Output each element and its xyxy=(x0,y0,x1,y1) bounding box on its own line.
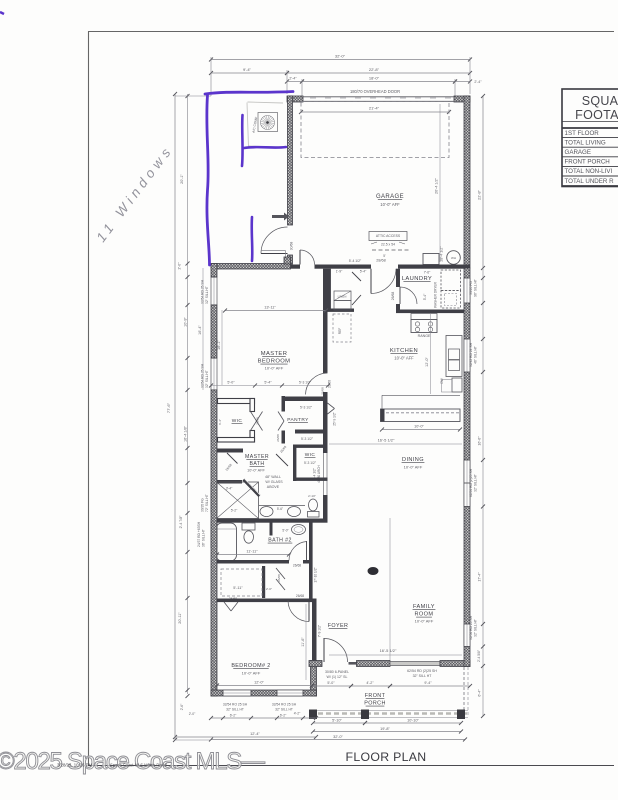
svg-text:6'-2": 6'-2" xyxy=(230,714,237,718)
svg-text:5'-2": 5'-2" xyxy=(231,509,238,513)
svg-text:MASTER: MASTER xyxy=(245,454,269,460)
svg-text:ROOM: ROOM xyxy=(414,612,433,618)
svg-text:KITCHEN: KITCHEN xyxy=(390,348,418,354)
svg-text:24/37 RD +63SH: 24/37 RD +63SH xyxy=(197,521,201,547)
svg-text:16'-4": 16'-4" xyxy=(198,325,202,335)
svg-text:32" SILL HT: 32" SILL HT xyxy=(205,370,209,388)
svg-text:77'-6": 77'-6" xyxy=(166,402,171,413)
svg-text:9'-4": 9'-4" xyxy=(424,681,432,685)
svg-text:10'-0" AFF: 10'-0" AFF xyxy=(404,465,423,470)
svg-text:2'-10": 2'-10" xyxy=(308,494,316,498)
svg-text:10'-0" AFF: 10'-0" AFF xyxy=(394,356,414,361)
svg-text:11'-11": 11'-11" xyxy=(246,550,258,554)
svg-text:30/20 FG: 30/20 FG xyxy=(201,498,205,512)
svg-text:DW: DW xyxy=(440,378,444,383)
svg-text:6'-2": 6'-2" xyxy=(280,714,287,718)
svg-text:19'-8": 19'-8" xyxy=(380,727,390,731)
svg-text:ABOVE: ABOVE xyxy=(267,485,280,489)
svg-text:5'-6": 5'-6" xyxy=(277,507,283,511)
svg-text:32" SILL HT: 32" SILL HT xyxy=(474,474,478,492)
svg-text:32/54 RO 25 SH: 32/54 RO 25 SH xyxy=(272,703,297,707)
svg-text:WH: WH xyxy=(451,256,456,260)
svg-text:10'-0" AFF: 10'-0" AFF xyxy=(242,671,261,676)
svg-text:26/68: 26/68 xyxy=(277,574,281,582)
svg-text:20'-11": 20'-11" xyxy=(178,612,182,624)
svg-text:12'-0": 12'-0" xyxy=(254,681,264,685)
svg-text:4'-2": 4'-2" xyxy=(294,712,301,716)
svg-text:PORCH: PORCH xyxy=(364,701,385,707)
svg-text:11'-6": 11'-6" xyxy=(301,637,305,647)
svg-text:3'-4": 3'-4" xyxy=(226,487,233,491)
svg-text:BATH #2: BATH #2 xyxy=(268,538,291,544)
svg-text:5'-4 1/2": 5'-4 1/2" xyxy=(349,259,362,263)
svg-text:13'-11": 13'-11" xyxy=(264,306,276,310)
svg-text:1'-9": 1'-9" xyxy=(336,270,343,274)
svg-text:20'-4 1/2": 20'-4 1/2" xyxy=(435,177,439,194)
svg-text:26/68: 26/68 xyxy=(391,292,395,301)
svg-text:FOYER: FOYER xyxy=(328,623,349,629)
svg-text:12'-0": 12'-0" xyxy=(425,357,429,367)
svg-text:10'-0" AFF: 10'-0" AFF xyxy=(247,469,265,473)
svg-text:2'-4 7/8": 2'-4 7/8" xyxy=(179,515,183,529)
svg-text:7'-9 1/2": 7'-9 1/2" xyxy=(318,624,322,637)
svg-text:26/68: 26/68 xyxy=(293,564,301,568)
svg-text:32/54 RD 25 SH: 32/54 RD 25 SH xyxy=(469,615,473,640)
svg-text:RANGE: RANGE xyxy=(418,334,431,338)
svg-text:LINEN: LINEN xyxy=(338,295,347,299)
svg-text:30/20 FG: 30/20 FG xyxy=(469,281,473,295)
svg-text:2'-4": 2'-4" xyxy=(289,77,297,81)
svg-text:TOTAL NON-LIVI: TOTAL NON-LIVI xyxy=(565,168,613,175)
svg-text:©2025 Space Coast MLS—: ©2025 Space Coast MLS— xyxy=(0,748,265,775)
svg-text:FAMILY: FAMILY xyxy=(413,604,435,610)
svg-text:22'-8": 22'-8" xyxy=(477,189,482,200)
svg-text:32/54 RD 25 SH: 32/54 RD 25 SH xyxy=(201,363,205,388)
svg-text:62/54 RD (2)25 SH: 62/54 RD (2)25 SH xyxy=(469,468,473,497)
svg-text:96" SILL HT: 96" SILL HT xyxy=(474,279,478,297)
svg-text:3/28/25, 10:26 PM: 3/28/25, 10:26 PM xyxy=(57,763,93,768)
svg-text:BEDROOM: BEDROOM xyxy=(258,359,291,365)
svg-text:5'-4": 5'-4" xyxy=(360,270,367,274)
svg-text:5'-4": 5'-4" xyxy=(264,381,272,385)
svg-text:72" SILL HT: 72" SILL HT xyxy=(205,494,209,512)
svg-text:32" SILL HT: 32" SILL HT xyxy=(275,708,293,712)
svg-text:FRONT: FRONT xyxy=(365,693,386,699)
svg-text:32/54 RD 25 SH: 32/54 RD 25 SH xyxy=(201,279,205,304)
svg-text:26/68: 26/68 xyxy=(296,594,304,598)
svg-text:GARAGE: GARAGE xyxy=(565,149,591,156)
svg-text:17'-10 1/2": 17'-10 1/2" xyxy=(314,567,318,582)
svg-text:W/ (1) 12" SL: W/ (1) 12" SL xyxy=(327,675,348,679)
svg-text:BATH: BATH xyxy=(249,461,264,467)
svg-text:46" SILL HT: 46" SILL HT xyxy=(474,346,478,364)
svg-text:26/68: 26/68 xyxy=(256,417,260,425)
svg-text:32'-0": 32'-0" xyxy=(333,735,343,739)
svg-text:5'-0": 5'-0" xyxy=(282,529,288,533)
svg-text:32'-0": 32'-0" xyxy=(335,54,346,59)
svg-text:32" SILL HT: 32" SILL HT xyxy=(205,286,209,304)
svg-text:32/42 RD 24 SH: 32/42 RD 24 SH xyxy=(469,342,473,367)
svg-text:FLOOR PLAN: FLOOR PLAN xyxy=(346,750,427,764)
svg-text:2'-0": 2'-0" xyxy=(178,262,182,270)
svg-text:20'-1": 20'-1" xyxy=(180,174,184,184)
svg-text:10'-0": 10'-0" xyxy=(414,425,424,429)
svg-text:SQUA: SQUA xyxy=(582,94,618,108)
svg-text:22.5 x 54: 22.5 x 54 xyxy=(381,243,395,247)
svg-text:TOTAL LIVING: TOTAL LIVING xyxy=(565,139,606,146)
svg-text:9'-4": 9'-4" xyxy=(243,67,252,72)
svg-text:FOOTA: FOOTA xyxy=(575,108,618,122)
svg-text:10'-9": 10'-9" xyxy=(184,317,188,327)
svg-text:5'-0": 5'-0" xyxy=(227,381,235,385)
svg-text:16'-1": 16'-1" xyxy=(217,340,221,350)
svg-text:4'-2": 4'-2" xyxy=(366,681,374,685)
svg-text:180/70 OVERHEAD DOOR: 180/70 OVERHEAD DOOR xyxy=(350,89,400,94)
svg-text:6'-4": 6'-4" xyxy=(218,419,222,425)
svg-text:36" SILL HT: 36" SILL HT xyxy=(202,529,206,547)
svg-text:32" SILL HT: 32" SILL HT xyxy=(413,674,433,678)
svg-text:Space Coast MLS Matrix Portal: Space Coast MLS Matrix Portal xyxy=(110,763,167,768)
svg-text:10'-0" AFF: 10'-0" AFF xyxy=(415,619,434,624)
svg-text:REF: REF xyxy=(338,328,342,334)
svg-text:GARAGE: GARAGE xyxy=(376,194,404,200)
svg-text:12'-4": 12'-4" xyxy=(250,732,260,736)
svg-text:2'-0": 2'-0" xyxy=(266,587,272,591)
svg-text:30/80 6-PANEL: 30/80 6-PANEL xyxy=(325,670,349,674)
svg-text:21'-4": 21'-4" xyxy=(369,106,380,111)
svg-text:5'-11": 5'-11" xyxy=(233,586,243,590)
svg-text:LAUNDRY: LAUNDRY xyxy=(402,276,432,282)
svg-text:32/54 RO 25 SH: 32/54 RO 25 SH xyxy=(223,703,248,707)
svg-text:5'-3 1/2": 5'-3 1/2" xyxy=(304,461,317,465)
svg-text:22'-8": 22'-8" xyxy=(369,67,380,72)
svg-text:5'-4": 5'-4" xyxy=(423,293,427,300)
svg-text:7'-6": 7'-6" xyxy=(424,271,431,275)
svg-text:32" SILL HT: 32" SILL HT xyxy=(226,708,244,712)
svg-text:25'-9 1/2": 25'-9 1/2" xyxy=(333,412,337,425)
svg-text:5'-3 1/2": 5'-3 1/2" xyxy=(299,381,312,385)
svg-text:28/68: 28/68 xyxy=(376,259,386,263)
svg-text:18'-0": 18'-0" xyxy=(369,76,380,81)
svg-text:WIC: WIC xyxy=(305,452,316,458)
svg-text:62/54 RD (2)25 SH: 62/54 RD (2)25 SH xyxy=(407,669,437,673)
svg-text:28'-4 1/2": 28'-4 1/2" xyxy=(440,246,444,262)
svg-text:5'-10": 5'-10" xyxy=(332,719,342,723)
svg-text:48" WALL: 48" WALL xyxy=(265,475,281,479)
svg-text:WIC: WIC xyxy=(232,418,243,424)
svg-text:1ST FLOOR: 1ST FLOOR xyxy=(565,130,600,137)
svg-text:MASTER: MASTER xyxy=(261,351,288,357)
svg-text:BEDROOM# 2: BEDROOM# 2 xyxy=(231,663,270,669)
svg-text:16'-5 1/2": 16'-5 1/2" xyxy=(378,438,395,443)
svg-text:16'-5 1/2": 16'-5 1/2" xyxy=(380,648,397,653)
svg-text:2'-6": 2'-6" xyxy=(180,703,184,710)
svg-text:16'-4 1/8": 16'-4 1/8" xyxy=(184,425,188,442)
svg-text:10'-0" AFF: 10'-0" AFF xyxy=(265,366,284,371)
svg-text:PANTRY: PANTRY xyxy=(287,417,309,423)
svg-text:DINING: DINING xyxy=(402,457,424,463)
svg-text:10'-0" AFF: 10'-0" AFF xyxy=(380,202,400,207)
svg-text:32" SILL HT: 32" SILL HT xyxy=(474,619,478,637)
svg-text:W/ GLASS: W/ GLASS xyxy=(265,480,283,484)
svg-text:5'-3 1/2": 5'-3 1/2" xyxy=(300,406,313,410)
svg-text:17'-4": 17'-4" xyxy=(478,572,482,582)
svg-text:26/68: 26/68 xyxy=(276,434,280,442)
svg-text:5'-0": 5'-0" xyxy=(327,681,335,685)
svg-text:2'-4": 2'-4" xyxy=(474,80,482,84)
svg-text:TOTAL UNDER R: TOTAL UNDER R xyxy=(565,178,615,185)
svg-text:ATTIC ACCESS: ATTIC ACCESS xyxy=(376,234,401,238)
svg-text:5'-3 1/2": 5'-3 1/2" xyxy=(301,437,314,441)
svg-text:2'-4 5/8": 2'-4 5/8" xyxy=(477,649,481,662)
svg-text:16'-6": 16'-6" xyxy=(478,436,482,446)
svg-text:6'-4": 6'-4" xyxy=(478,689,482,697)
svg-text:10'-10": 10'-10" xyxy=(407,719,419,723)
svg-text:FRONT PORCH: FRONT PORCH xyxy=(565,159,610,166)
svg-text:WASHER DRYER: WASHER DRYER xyxy=(434,281,438,308)
svg-text:5': 5' xyxy=(383,254,386,258)
svg-text:2'-0": 2'-0" xyxy=(189,712,196,716)
svg-text:30/68: 30/68 xyxy=(290,242,294,251)
